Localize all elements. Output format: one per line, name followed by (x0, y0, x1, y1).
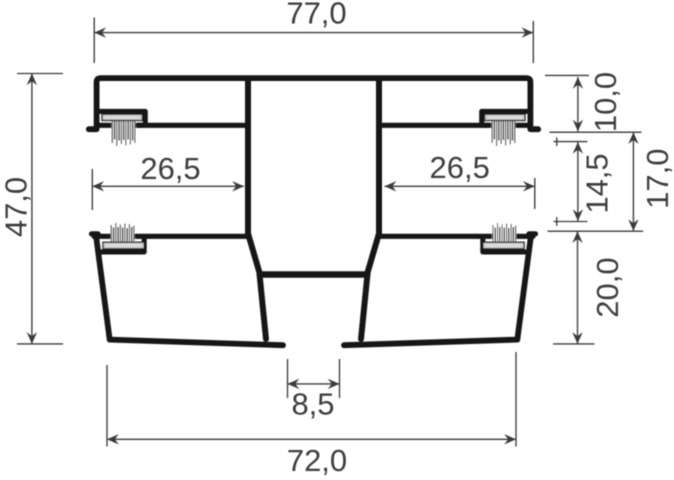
svg-text:10,0: 10,0 (588, 72, 623, 132)
svg-text:77,0: 77,0 (286, 0, 346, 31)
svg-text:8,5: 8,5 (291, 386, 334, 421)
svg-text:26,5: 26,5 (430, 150, 490, 185)
svg-text:72,0: 72,0 (287, 443, 347, 478)
svg-text:47,0: 47,0 (0, 177, 34, 237)
svg-text:26,5: 26,5 (140, 151, 200, 186)
svg-text:14,5: 14,5 (580, 153, 615, 213)
svg-text:20,0: 20,0 (590, 257, 625, 317)
svg-text:17,0: 17,0 (640, 149, 674, 209)
